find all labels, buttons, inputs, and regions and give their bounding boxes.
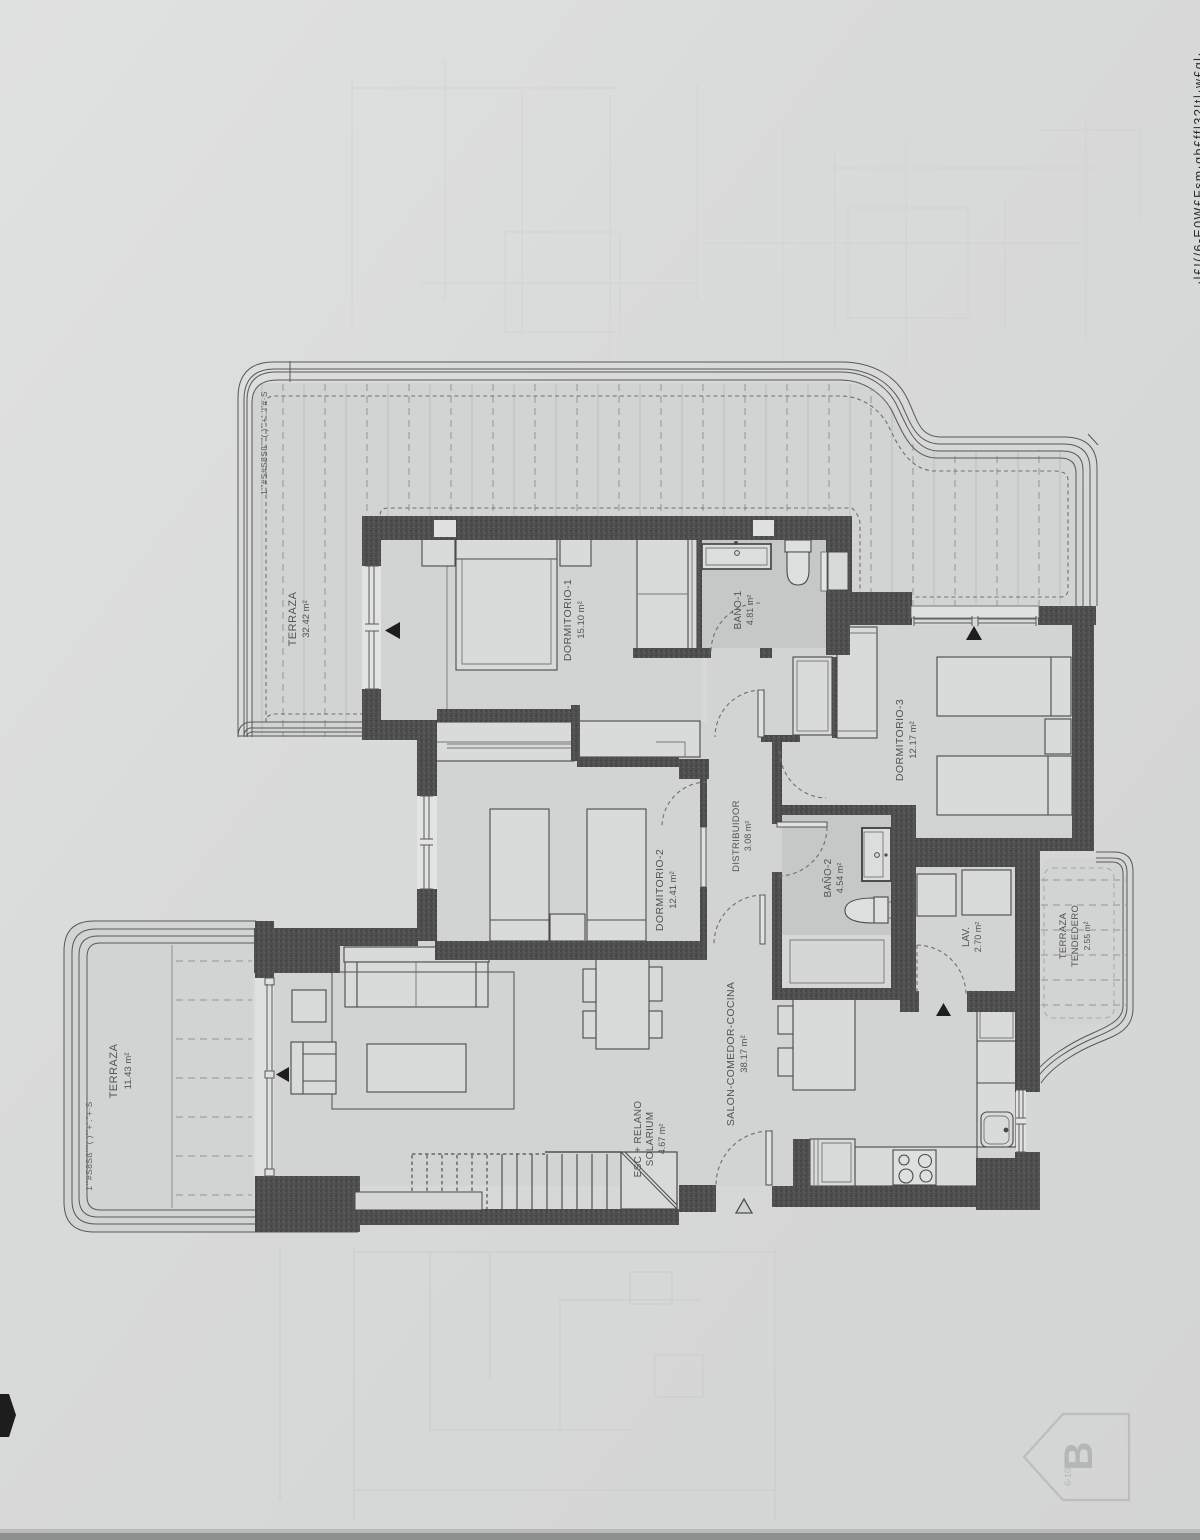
svg-text:4.54 m²: 4.54 m² xyxy=(835,863,845,894)
svg-text:DORMITORIO-1: DORMITORIO-1 xyxy=(562,579,574,661)
svg-text:DORMITORIO-2: DORMITORIO-2 xyxy=(654,849,666,931)
svg-text:TENDEDERO: TENDEDERO xyxy=(1070,905,1081,967)
svg-text:LAV.: LAV. xyxy=(961,927,972,947)
svg-text:12.41 m²: 12.41 m² xyxy=(668,871,679,909)
svg-text:TERRAZA: TERRAZA xyxy=(287,591,299,646)
svg-text:B: B xyxy=(1057,1442,1101,1471)
svg-text:SOLARIUM: SOLARIUM xyxy=(645,1112,656,1167)
svg-text:·l£!(/6-E0W£Fsm·gb£ff|3?!t|·w£: ·l£!(/6-E0W£Fsm·gb£ff|3?!t|·w£ql· xyxy=(1192,51,1200,285)
svg-text:DORMITORIO-3: DORMITORIO-3 xyxy=(894,699,906,781)
svg-text:ESC + RELANO: ESC + RELANO xyxy=(633,1101,644,1178)
svg-text:TERRAZA: TERRAZA xyxy=(1058,912,1069,959)
svg-text:4.67 m²: 4.67 m² xyxy=(657,1124,667,1155)
svg-text:11.43 m²: 11.43 m² xyxy=(123,1053,134,1090)
svg-text:38.17 m²: 38.17 m² xyxy=(739,1035,750,1073)
svg-text:BAÑO-2: BAÑO-2 xyxy=(821,858,834,897)
svg-text:2.55 m²: 2.55 m² xyxy=(1082,921,1092,950)
svg-text:3.08 m²: 3.08 m² xyxy=(743,821,753,852)
svg-text:BAÑO-1: BAÑO-1 xyxy=(731,590,744,629)
svg-text:DISTRIBUIDOR: DISTRIBUIDOR xyxy=(731,800,742,872)
svg-text:6-10: 6-10 xyxy=(1063,1468,1073,1486)
svg-text:SALON-COMEDOR-COCINA: SALON-COMEDOR-COCINA xyxy=(725,982,737,1126)
svg-text:12.17 m²: 12.17 m² xyxy=(908,721,919,759)
svg-text:2.70 m²: 2.70 m² xyxy=(973,922,983,953)
svg-text:32.42 m²: 32.42 m² xyxy=(301,600,312,638)
svg-text:TERRAZA: TERRAZA xyxy=(108,1043,120,1098)
svg-text:4.81 m²: 4.81 m² xyxy=(745,595,755,626)
svg-text:1’”#S#S8Sß’’”( )”’+’.’l’#·S: 1’”#S#S8Sß’’”( )”’+’.’l’#·S xyxy=(259,391,269,495)
svg-text:1’”#S8Sß’”’( )”’+’.”+·S: 1’”#S8Sß’”’( )”’+’.”+·S xyxy=(84,1101,94,1191)
svg-text:15.10 m²: 15.10 m² xyxy=(576,601,587,639)
